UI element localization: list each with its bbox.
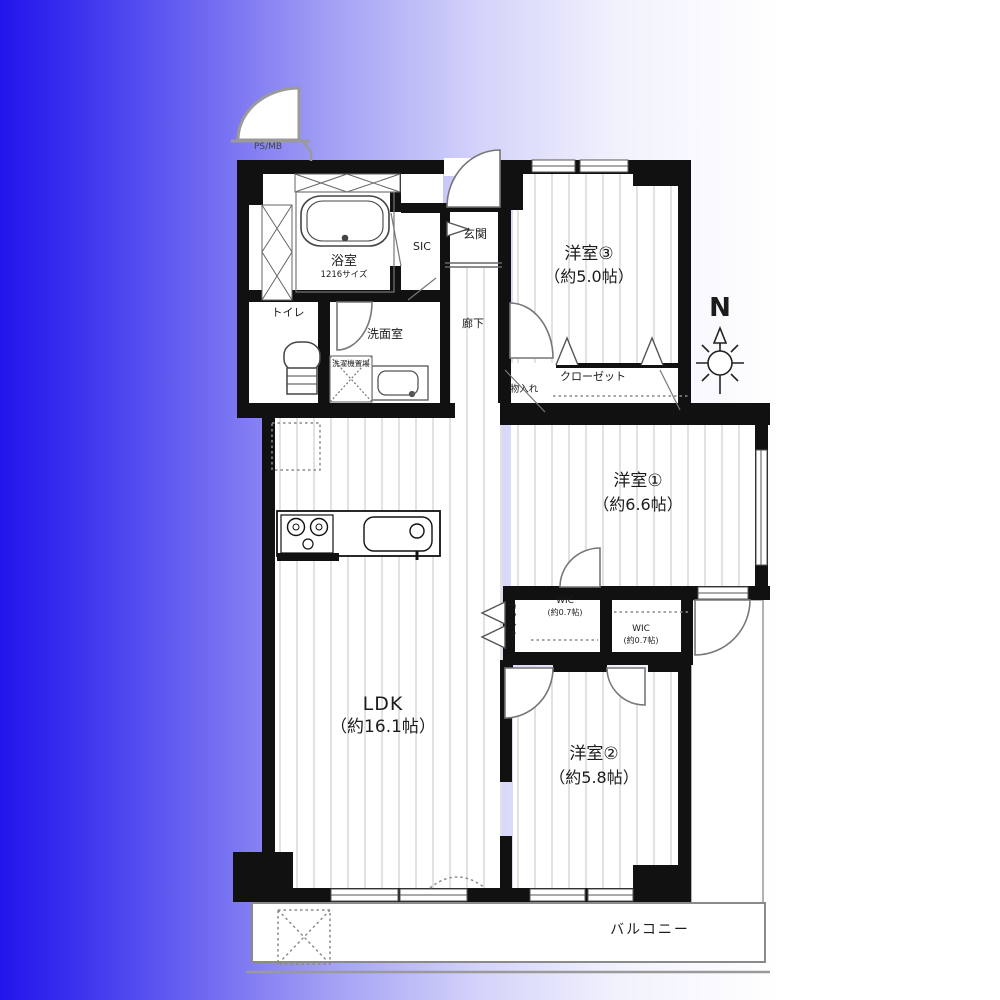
bedroom1-size-label: （約6.6帖） bbox=[573, 496, 703, 514]
psmb-label: PS/MB bbox=[244, 142, 292, 152]
wic2-size-label: (約0.7帖) bbox=[610, 636, 672, 645]
wic2-label: WIC bbox=[616, 624, 666, 634]
kitchen-counter-icon bbox=[277, 511, 440, 561]
bedroom3-label: 洋室③ bbox=[534, 245, 644, 265]
bedroom1-label: 洋室① bbox=[583, 472, 693, 492]
wic1-label: WIC bbox=[540, 596, 590, 606]
laundry-label: 洗濯機置場 bbox=[332, 360, 370, 369]
storage-label: 物入れ bbox=[502, 385, 546, 396]
hallway-label: 廊下 bbox=[449, 318, 497, 331]
vanity-icon bbox=[372, 366, 428, 400]
ldk-size-label: （約16.1帖） bbox=[313, 718, 453, 738]
compass-north-label: N bbox=[706, 294, 734, 324]
balcony-label: バルコニー bbox=[600, 922, 700, 938]
bedroom3-size-label: （約5.0帖） bbox=[524, 268, 654, 286]
closet-label: クローゼット bbox=[548, 371, 638, 384]
counter-label: カウンター bbox=[506, 597, 516, 655]
floor-plan-drawing bbox=[0, 0, 1000, 1000]
entrance-label: 玄関 bbox=[452, 228, 498, 242]
ldk-label: LDK bbox=[328, 694, 438, 716]
toilet-label: トイレ bbox=[262, 307, 314, 320]
floor-plan: PS/MB 浴室 1216サイズ SIC 玄関 トイレ 洗面室 洗濯機置場 廊下… bbox=[0, 0, 1000, 1000]
washroom-label: 洗面室 bbox=[352, 328, 418, 342]
bedroom2-label: 洋室② bbox=[539, 745, 649, 765]
compass-icon bbox=[696, 328, 744, 394]
toilet-icon bbox=[284, 342, 320, 394]
wic1-size-label: (約0.7帖) bbox=[534, 608, 596, 617]
bedroom2-size-label: （約5.8帖） bbox=[529, 769, 659, 787]
shoe-closet-label: SIC bbox=[403, 241, 441, 254]
bath-label: 浴室 bbox=[309, 255, 379, 270]
bath-size-label: 1216サイズ bbox=[305, 271, 383, 281]
